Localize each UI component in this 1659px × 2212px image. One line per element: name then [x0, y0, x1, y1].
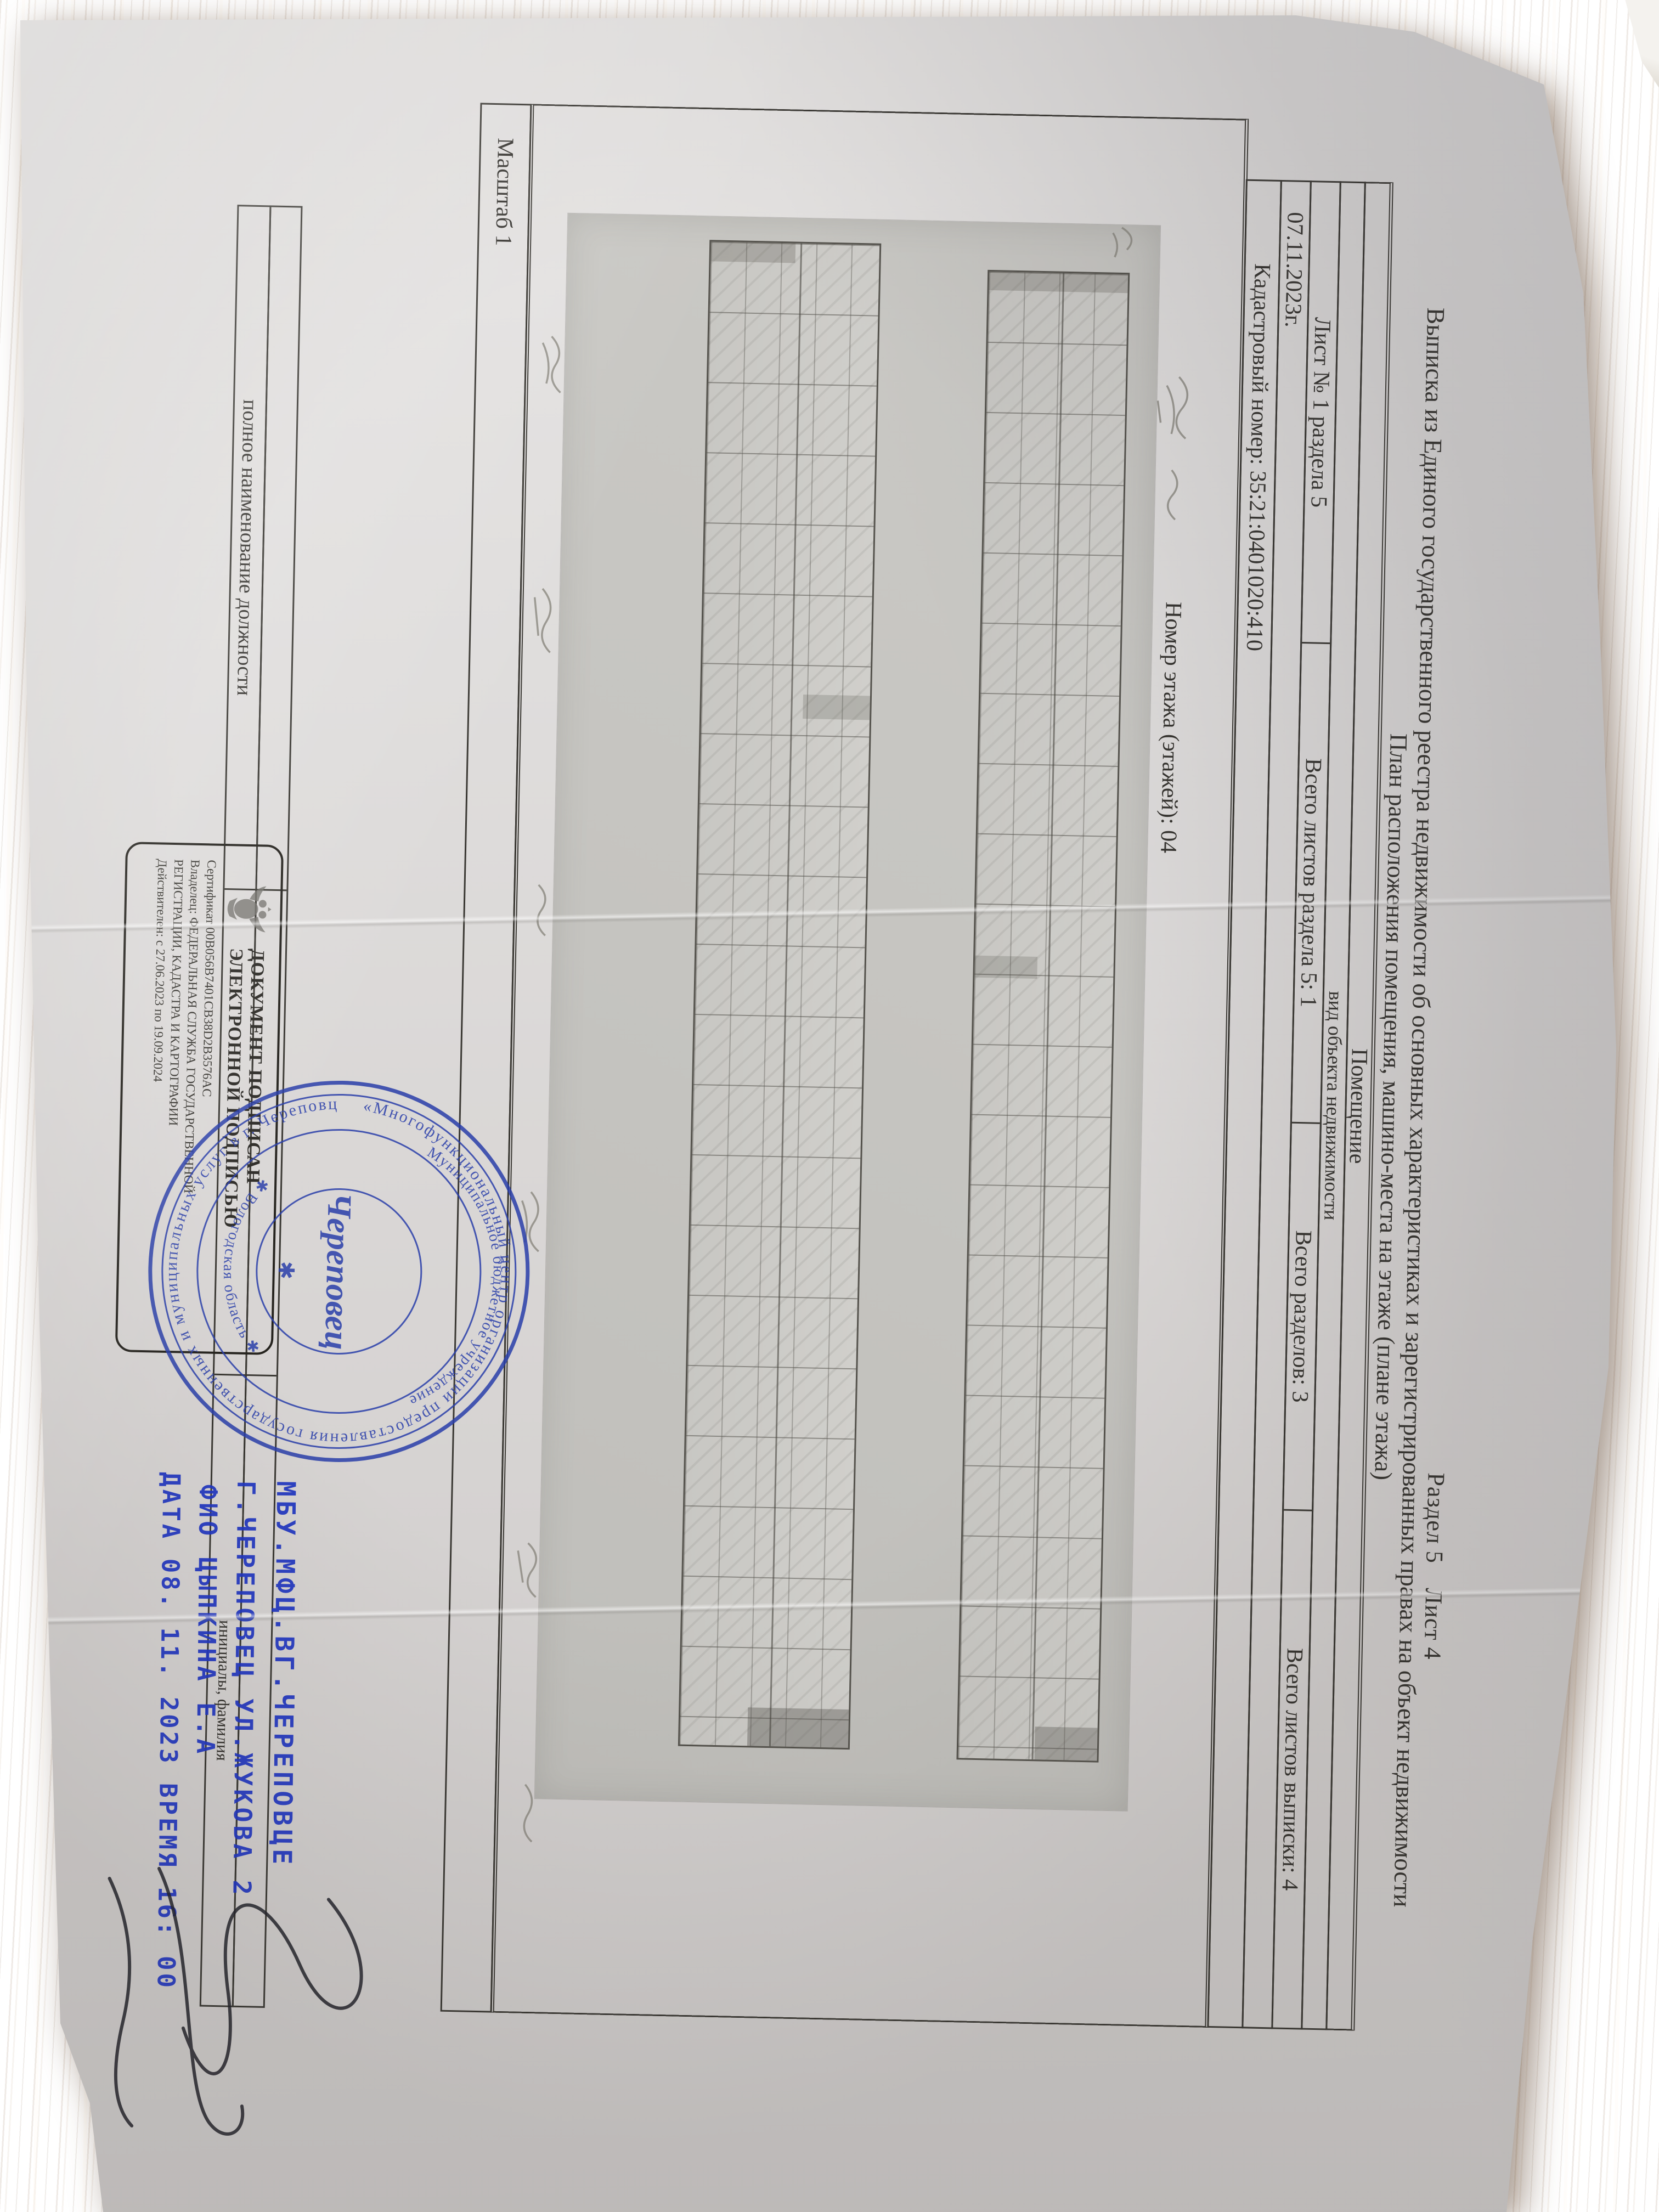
object-type: Помещение: [1344, 1048, 1373, 1164]
cadastral-number: Кадастровый номер: 35:21:0401020:410: [1241, 263, 1276, 652]
paper-sheet: Раздел 5 Лист 4 Выписка из Единого госуд…: [7, 7, 1625, 2212]
egrn-extract-page: Раздел 5 Лист 4 Выписка из Единого госуд…: [0, 17, 1596, 2188]
handwritten-signature: [38, 1844, 396, 2158]
stamp-center-text: Череповец: [318, 1192, 358, 1350]
position-label: полное наименование должности: [232, 399, 262, 696]
object-type-caption: вид объекта недвижимости: [1319, 991, 1347, 1221]
stamp-outer-bottom-text: ✱ Вологодская область ✱: [218, 1174, 273, 1358]
scale-label: Масштаб 1: [490, 138, 518, 246]
extract-date: 07.11.2023г.: [1280, 212, 1308, 328]
floor-plan-cell: Номер этажа (этажей): 04: [490, 104, 1249, 2028]
pencil-annotations: [487, 105, 1245, 2029]
svg-text:✱ Вологодская область ✱: ✱ Вологодская область ✱: [218, 1174, 273, 1358]
document-photo: Раздел 5 Лист 4 Выписка из Единого госуд…: [0, 0, 1659, 2212]
mfc-round-stamp: «Многофункциональный центр организации п…: [137, 1070, 540, 1473]
stamp-star-icon: ✱: [274, 1261, 299, 1279]
